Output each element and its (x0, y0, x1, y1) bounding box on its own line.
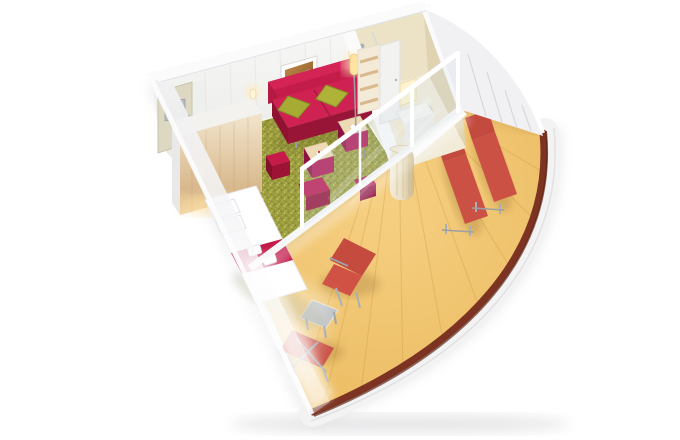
bottom-shadow (230, 414, 570, 434)
cabinet-handle (395, 79, 397, 81)
sconce-lamp (250, 89, 256, 99)
cabin-floorplan-render (0, 0, 680, 440)
lamp-shade (350, 54, 358, 75)
door-handle (363, 150, 366, 158)
red-cube-stool (266, 151, 290, 180)
floorplan-svg (0, 0, 680, 440)
wall-sconce (245, 84, 261, 100)
